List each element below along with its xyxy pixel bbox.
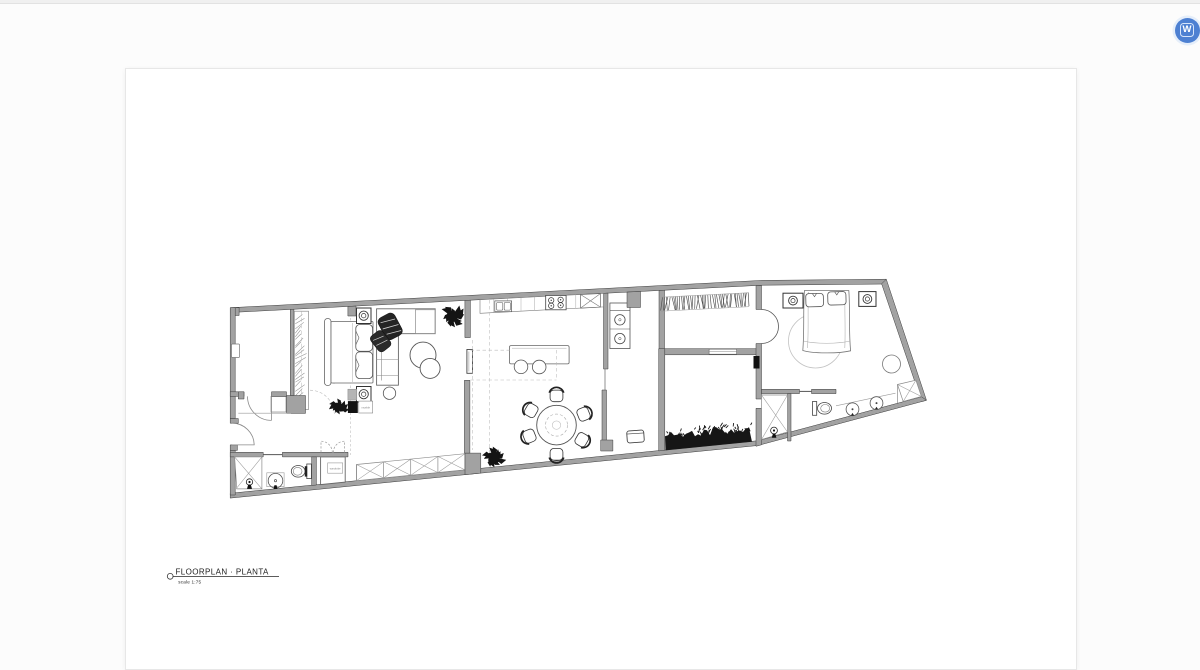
svg-text:scale 1:75: scale 1:75: [178, 580, 201, 585]
svg-text:FLOORPLAN · PLANTA: FLOORPLAN · PLANTA: [176, 568, 270, 577]
svg-text:wardrobe: wardrobe: [330, 467, 341, 471]
svg-text:mueble: mueble: [361, 405, 370, 409]
